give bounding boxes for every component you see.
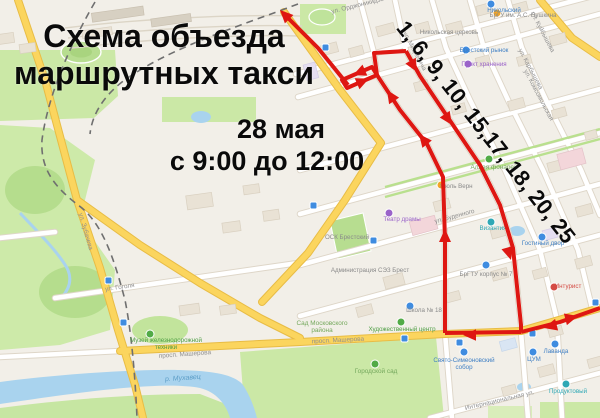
park-label: Городской сад (355, 367, 398, 375)
city-garden-icon (371, 360, 379, 368)
tsum-icon (529, 348, 537, 356)
park-label: района (311, 326, 333, 334)
poi-label: Школа № 18 (406, 307, 442, 314)
poi-label: Администрация СЭЗ Брест (331, 267, 409, 274)
poi-label: Свято-Симеоновский (433, 357, 495, 364)
poi-label: Византия (480, 225, 507, 232)
university-icon (482, 261, 490, 269)
route-line-masherova-west (445, 332, 521, 333)
scheme-time: с 9:00 до 12:00 (170, 146, 364, 177)
scheme-title-line2: маршрутных такси (14, 55, 314, 92)
poi-label: Никольский (487, 7, 521, 14)
poi-label: Никольская церковь (420, 29, 478, 36)
cathedral-icon (460, 348, 468, 356)
poi-label: Продуктовый (549, 388, 588, 395)
poi-label: техники (155, 344, 178, 351)
poi-label: ОСК Брестский (325, 234, 370, 241)
poi-label: собор (455, 364, 473, 371)
poi-label: БрГТУ корпус № 7 (460, 271, 513, 278)
scheme-title-line1: Схема объезда (14, 18, 314, 55)
poi-label: Пункт хранения (461, 61, 506, 68)
grocery-icon (562, 380, 570, 388)
poi-label: Театр драмы (383, 216, 421, 223)
park-label: Сад Московского (297, 320, 348, 327)
poi-label: Интурист (555, 283, 582, 290)
art-center-icon (397, 318, 405, 326)
poi-label: ЦУМ (527, 356, 541, 363)
poi-label: Лаванда (544, 348, 569, 355)
poi-label: Брестский рынок (460, 47, 509, 54)
scheme-date: 28 мая (237, 114, 325, 145)
lavanda-icon (551, 340, 559, 348)
poi-label: Художественный центр (368, 326, 436, 333)
detour-scheme-image: ул. Зубачева ул. Гоголя просп. Машерова … (0, 0, 600, 418)
poi-label: Музей железнодорожной (130, 337, 202, 344)
scheme-title: Схема объезда маршрутных такси (14, 18, 314, 92)
